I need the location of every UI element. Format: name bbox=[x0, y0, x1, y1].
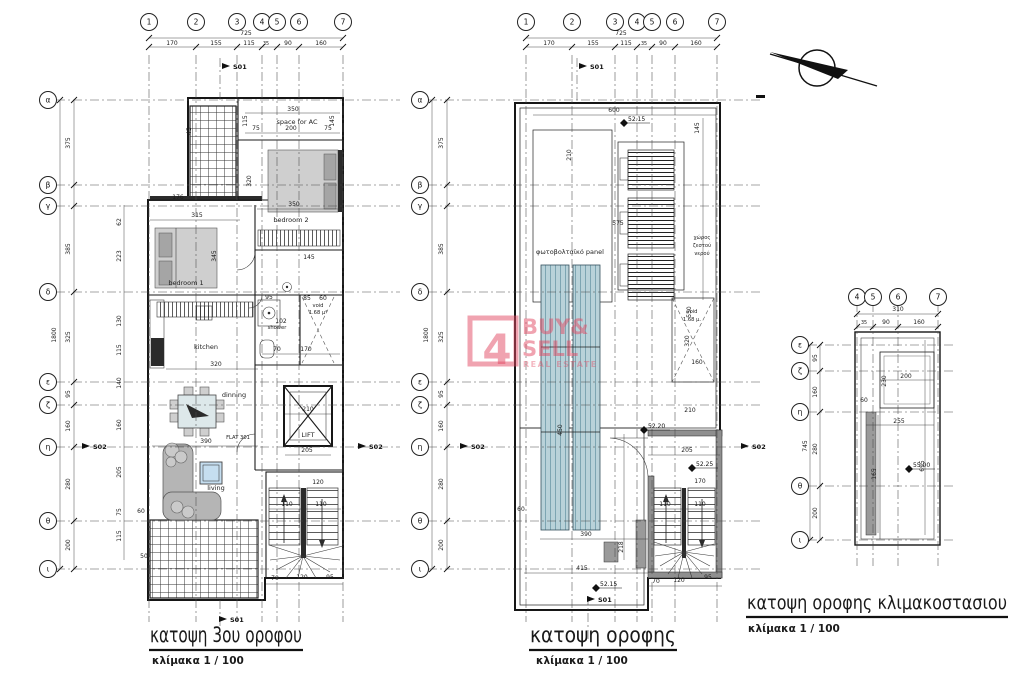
dim-label: 95 bbox=[704, 574, 712, 581]
pv-panel-label: φωτοβολταϊκό panel bbox=[536, 248, 604, 256]
section-marker-icon bbox=[222, 63, 230, 69]
dim-label: 280 bbox=[812, 443, 819, 455]
section-marker-icon bbox=[82, 443, 90, 449]
skylight bbox=[200, 462, 222, 484]
dim-label: 390 bbox=[200, 438, 212, 445]
plan-title-roof: κατοψη οροφης bbox=[530, 623, 676, 647]
room-label-void: void bbox=[313, 303, 324, 309]
dim-label: 110 bbox=[281, 501, 293, 508]
grid-bubble-label: ζ bbox=[418, 401, 422, 410]
grid-bubble-label: η bbox=[798, 408, 803, 417]
dim-label: 120 bbox=[296, 574, 308, 581]
dim-label: 115 bbox=[620, 40, 632, 47]
dim-label: 200 bbox=[438, 539, 445, 551]
watermark-text: REAL ESTATE bbox=[523, 360, 598, 369]
dim-label: 95 bbox=[65, 390, 72, 398]
watermark-logo: 4 bbox=[482, 325, 511, 374]
section-marker-label: S02 bbox=[471, 443, 485, 451]
dim-label: 90 bbox=[284, 40, 292, 47]
dim-label: 110 bbox=[659, 501, 671, 508]
section-marker-label: S01 bbox=[233, 63, 247, 71]
dim-label: 75 bbox=[116, 508, 123, 516]
dim-label: 145 bbox=[329, 115, 336, 127]
dining-table bbox=[170, 387, 224, 436]
dim-label: 223 bbox=[116, 250, 123, 262]
dim-label: 375 bbox=[65, 137, 72, 149]
dim-label: 205 bbox=[116, 466, 123, 478]
dim-label: 160 bbox=[690, 40, 702, 47]
grid-bubble-label: 1 bbox=[147, 18, 152, 27]
grid-bubble-label: 2 bbox=[570, 18, 575, 27]
level-marker-icon bbox=[592, 584, 600, 592]
grid-bubble-label: 2 bbox=[194, 18, 199, 27]
section-marker-icon bbox=[587, 596, 595, 602]
section-marker-icon bbox=[579, 63, 587, 69]
level-label: 52.20 bbox=[648, 423, 665, 430]
grid-bubble-label: 5 bbox=[275, 18, 280, 27]
dim-label: 160 bbox=[812, 386, 819, 398]
bed-2 bbox=[268, 150, 343, 212]
dim-label: 210 bbox=[566, 149, 573, 161]
dim-label: 345 bbox=[211, 250, 218, 262]
section-marker-icon bbox=[460, 443, 468, 449]
dim-label: 35 bbox=[861, 320, 867, 326]
grid-bubble-label: γ bbox=[46, 202, 51, 211]
dim-label: 170 bbox=[300, 346, 312, 353]
grid-bubble-label: η bbox=[46, 443, 51, 452]
north-arrow-icon bbox=[756, 50, 877, 98]
dim-label: 320 bbox=[684, 335, 691, 347]
water-space-label: χώρος bbox=[694, 234, 711, 241]
grid-bubble-label: α bbox=[46, 96, 51, 105]
dim-label: 62 bbox=[116, 218, 123, 226]
dim-label: 95 bbox=[812, 354, 819, 362]
dim-label: 1800 bbox=[423, 327, 430, 342]
grid-bubble-label: ι bbox=[47, 565, 50, 574]
dim-label: 140 bbox=[116, 377, 123, 389]
room-label-bedroom2: bedroom 2 bbox=[273, 216, 308, 224]
level-marker-icon bbox=[688, 464, 696, 472]
plan-stair-roof-drawing bbox=[855, 332, 940, 545]
wall-patch bbox=[636, 520, 646, 568]
grid-bubble-label: ζ bbox=[798, 367, 802, 376]
stove bbox=[196, 306, 212, 320]
floor-plan-canvas: 1234567αβγδεζηθι725170155115359016018003… bbox=[0, 0, 1024, 680]
dim-label: 45 bbox=[186, 127, 193, 135]
dim-label: 325 bbox=[65, 331, 72, 343]
section-marker-icon bbox=[358, 443, 366, 449]
veranda-hatch bbox=[150, 520, 258, 598]
dim-label: 90 bbox=[882, 319, 890, 326]
grid-bubble-label: 5 bbox=[871, 293, 876, 302]
dim-label: 725 bbox=[240, 30, 252, 37]
level-label: 52.15 bbox=[628, 116, 645, 123]
dim-label: 205 bbox=[681, 447, 693, 454]
dim-label: 385 bbox=[65, 243, 72, 255]
dim-label: 320 bbox=[246, 175, 253, 187]
section-marker-label: S01 bbox=[598, 596, 612, 604]
grid-bubble-label: β bbox=[46, 181, 51, 190]
dim-label: 35 bbox=[263, 41, 269, 47]
watermark-text: BUY& bbox=[522, 315, 589, 339]
grid-bubble-label: 4 bbox=[635, 18, 640, 27]
dim-label: 155 bbox=[587, 40, 599, 47]
flat-number-label: FLAT 301 bbox=[226, 435, 250, 441]
grid-bubble-label: 7 bbox=[936, 293, 941, 302]
grid-bubble-label: 3 bbox=[235, 18, 240, 27]
grid-bubble-label: ε bbox=[46, 378, 50, 387]
dim-label: 160 bbox=[691, 359, 703, 366]
dim-label: 375 bbox=[438, 137, 445, 149]
dim-label: 160 bbox=[913, 319, 925, 326]
level-label: 52.25 bbox=[696, 461, 713, 468]
plan-title-floor3: κατοψη 3ου οροφου bbox=[150, 623, 302, 647]
room-label-dinning: dinning bbox=[222, 391, 246, 399]
dim-label: 315 bbox=[191, 212, 203, 219]
blueprint-page: 1234567αβγδεζηθι725170155115359016018003… bbox=[0, 0, 1024, 680]
grid-bubble-label: 7 bbox=[341, 18, 346, 27]
water-space-label: ζεστού bbox=[693, 242, 711, 249]
level-label: 52.15 bbox=[600, 581, 617, 588]
grid-bubble-label: ε bbox=[418, 378, 422, 387]
dim-label: 415 bbox=[576, 565, 588, 572]
grid-bubble-label: α bbox=[418, 96, 423, 105]
dim-label: 130 bbox=[116, 315, 123, 327]
grid-bubble-label: ε bbox=[798, 341, 802, 350]
dim-label: 385 bbox=[438, 243, 445, 255]
dim-label: 145 bbox=[303, 254, 315, 261]
dim-label: 35 bbox=[641, 41, 647, 47]
room-label-bedroom1: bedroom 1 bbox=[168, 279, 203, 287]
grid-bubble-label: 6 bbox=[297, 18, 302, 27]
dim-label: 115 bbox=[116, 344, 123, 356]
dim-label: 200 bbox=[900, 373, 912, 380]
section-marker-icon bbox=[219, 616, 227, 622]
watermark-text: SELL bbox=[522, 337, 578, 361]
grid-bubble-label: θ bbox=[46, 517, 51, 526]
room-label-kitchen: kitchen bbox=[194, 343, 218, 351]
dim-label: 60 bbox=[319, 295, 327, 302]
dim-label: 110 bbox=[315, 501, 327, 508]
grid-bubble-label: 6 bbox=[896, 293, 901, 302]
grid-bubble-label: 7 bbox=[715, 18, 720, 27]
dim-label: 1800 bbox=[51, 327, 58, 342]
dim-label: 95 bbox=[265, 294, 273, 301]
door-arc bbox=[610, 438, 648, 476]
water-space-label: νερού bbox=[694, 250, 709, 257]
dim-label: 390 bbox=[580, 531, 592, 538]
room-label-living: living bbox=[207, 484, 225, 492]
grid-bubble-label: 4 bbox=[260, 18, 265, 27]
dim-label: 170 bbox=[543, 40, 555, 47]
scale-label: κλίμακα 1 / 100 bbox=[748, 623, 840, 635]
section-marker-label: S02 bbox=[752, 443, 766, 451]
dim-label: 745 bbox=[802, 440, 809, 452]
room-label-void-area: 1.68 μ² bbox=[309, 310, 328, 316]
door-arcs bbox=[237, 252, 262, 452]
dim-label: 205 bbox=[301, 447, 313, 454]
dim-label: 160 bbox=[65, 420, 72, 432]
dim-label: 320 bbox=[210, 361, 222, 368]
dim-label: 160 bbox=[315, 40, 327, 47]
grid-bubble-label: 6 bbox=[673, 18, 678, 27]
dim-label: 155 bbox=[210, 40, 222, 47]
staircase bbox=[266, 472, 343, 578]
dim-label: 325 bbox=[438, 331, 445, 343]
section-marker-label: S02 bbox=[369, 443, 383, 451]
dim-label: 102 bbox=[275, 318, 287, 325]
grid-bubble-label: 3 bbox=[613, 18, 618, 27]
dim-label: 170 bbox=[694, 478, 706, 485]
dim-label: 95 bbox=[438, 390, 445, 398]
dim-label: 115 bbox=[242, 115, 249, 127]
dim-label: 170 bbox=[166, 40, 178, 47]
grid-bubble-label: ι bbox=[419, 565, 422, 574]
section-marker-icon bbox=[741, 443, 749, 449]
section-marker-label: S01 bbox=[590, 63, 604, 71]
dim-label: 110 bbox=[694, 501, 706, 508]
grid-bubble-label: δ bbox=[46, 288, 51, 297]
grid-bubble-label: θ bbox=[418, 517, 423, 526]
dim-label: 85 bbox=[303, 295, 311, 302]
dim-label: 600 bbox=[608, 107, 620, 114]
dim-label: 70 bbox=[271, 575, 279, 582]
photovoltaic-panels bbox=[541, 265, 600, 530]
level-label: 55.00 bbox=[913, 462, 930, 469]
grid-bubble-label: δ bbox=[418, 288, 423, 297]
grid-bubble-label: ι bbox=[799, 536, 802, 545]
dim-label: 145 bbox=[694, 122, 701, 134]
room-label-void-area: 1.68 μ. bbox=[683, 317, 701, 323]
dim-label: 176 bbox=[172, 194, 184, 201]
dim-label: 60 bbox=[860, 397, 868, 404]
grid-bubble-label: 5 bbox=[650, 18, 655, 27]
dim-label: 210 bbox=[684, 407, 696, 414]
grid-bubble-label: 1 bbox=[524, 18, 529, 27]
room-label-void: void bbox=[687, 309, 698, 315]
scale-label: κλίμακα 1 / 100 bbox=[536, 655, 628, 667]
level-marker-icon bbox=[620, 119, 628, 127]
dim-label: 90 bbox=[659, 40, 667, 47]
dim-label: 115 bbox=[243, 40, 255, 47]
dim-label: 210 bbox=[302, 406, 314, 413]
grid-bubble-label: ζ bbox=[46, 401, 50, 410]
dim-label: 200 bbox=[285, 125, 297, 132]
solar-water-heaters bbox=[620, 150, 674, 300]
dim-label: 280 bbox=[438, 478, 445, 490]
grid-bubble-label: θ bbox=[798, 482, 803, 491]
dim-label: 160 bbox=[116, 419, 123, 431]
room-label-ac: space for AC bbox=[276, 118, 317, 126]
wall-patch bbox=[604, 542, 618, 562]
dim-label: 350 bbox=[288, 201, 300, 208]
room-label-lift: LIFT bbox=[301, 431, 314, 439]
room-label-shower: shower bbox=[268, 325, 288, 331]
dim-label: 60 bbox=[517, 506, 525, 513]
dim-label: 310 bbox=[892, 306, 904, 313]
grid-bubble-label: β bbox=[418, 181, 423, 190]
dim-label: 95 bbox=[326, 574, 334, 581]
dim-label: 450 bbox=[557, 424, 564, 436]
level-marker-icon bbox=[905, 465, 913, 473]
fridge bbox=[151, 338, 164, 366]
dim-label: 350 bbox=[287, 106, 299, 113]
pergola-hatch bbox=[190, 106, 236, 198]
dim-label: 200 bbox=[65, 539, 72, 551]
dim-label: 50 bbox=[140, 553, 148, 560]
dim-label: 725 bbox=[615, 30, 627, 37]
dim-label: 120 bbox=[673, 577, 685, 584]
plan-title-stair-roof: κατοψη οροφης κλιμακοστασιου bbox=[747, 592, 1007, 614]
section-marker-label: S02 bbox=[93, 443, 107, 451]
dim-label: 70 bbox=[273, 346, 281, 353]
dim-label: 75 bbox=[252, 125, 260, 132]
dim-label: 115 bbox=[116, 530, 123, 542]
dim-label: 230 bbox=[881, 375, 888, 387]
dim-label: 255 bbox=[893, 418, 905, 425]
dim-label: 160 bbox=[438, 420, 445, 432]
dim-label: 70 bbox=[652, 578, 660, 585]
dim-label: 280 bbox=[65, 478, 72, 490]
dim-label: 60 bbox=[137, 508, 145, 515]
dim-label: 165 bbox=[871, 468, 878, 480]
level-marker-icon bbox=[640, 426, 648, 434]
grid-bubble-label: 4 bbox=[855, 293, 860, 302]
dim-label: 120 bbox=[312, 479, 324, 486]
dim-label: 218 bbox=[618, 541, 625, 553]
dim-label: 200 bbox=[812, 507, 819, 519]
grid-bubble-label: η bbox=[418, 443, 423, 452]
dim-label: 575 bbox=[612, 220, 624, 227]
scale-label: κλίμακα 1 / 100 bbox=[152, 655, 244, 667]
grid-bubble-label: γ bbox=[418, 202, 423, 211]
